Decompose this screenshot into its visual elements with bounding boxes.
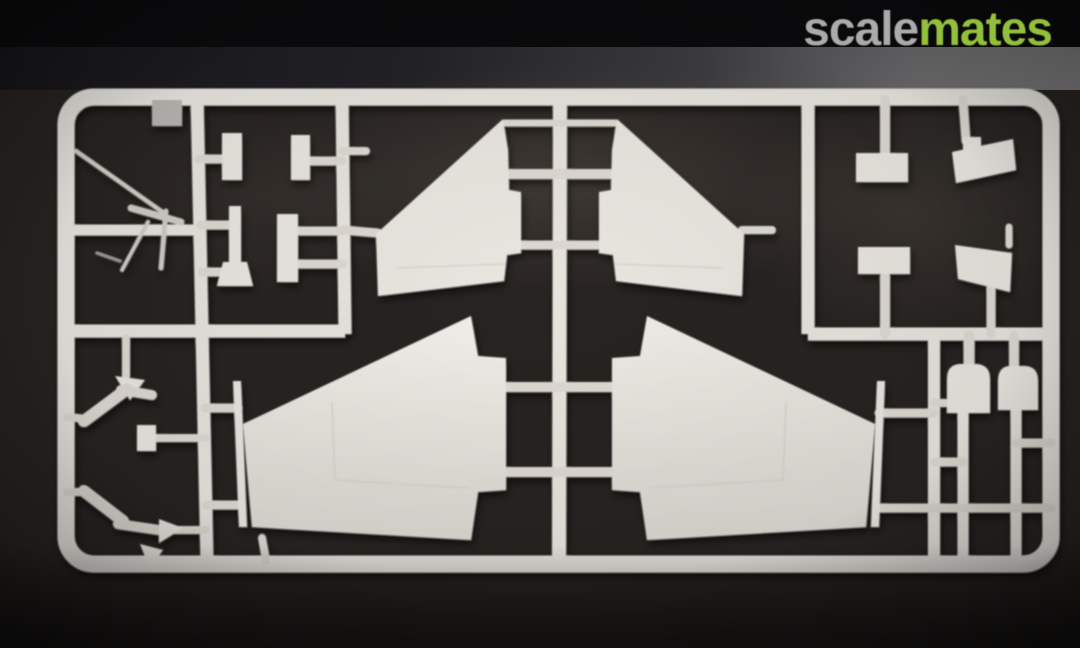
watermark-text-mates: mates <box>918 3 1052 56</box>
sprue-photo <box>0 0 1080 648</box>
vignette <box>0 0 1080 648</box>
watermark-logo: scalemates <box>803 6 1052 54</box>
photo-stage: scalemates <box>0 0 1080 648</box>
watermark-text-scale: scale <box>803 3 918 56</box>
